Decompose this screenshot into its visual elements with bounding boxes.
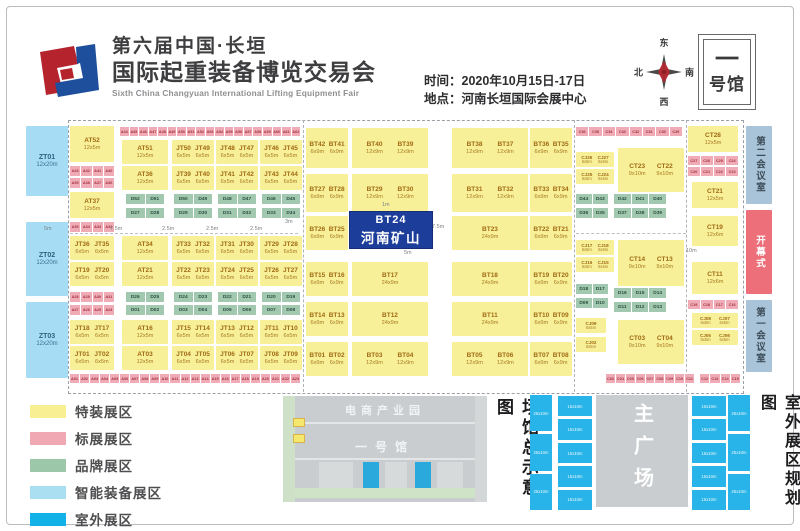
booth-BT38: BT3812x9m — [466, 141, 483, 155]
booth-D40: D40 — [649, 194, 666, 204]
outdoor-plan-caption: 室外展区规划图 — [754, 394, 800, 514]
booth-D04: D04 — [194, 305, 213, 315]
outdoor-plan: 25x10m25x10m25x10m 15x10m15x10m15x10m15x… — [530, 393, 752, 512]
booth-A03: A03 — [90, 374, 99, 383]
booth-D20: D20 — [262, 292, 281, 302]
outdoor-strip-right: 25x10m25x10m25x10m — [728, 395, 750, 510]
booth-box: ZT0312x20m — [26, 302, 68, 378]
booth-C34: C34 — [603, 127, 615, 136]
legend-swatch — [30, 459, 66, 472]
booth-C29: C29 — [670, 127, 682, 136]
booth-box: BT3112x9mBT3212x9m — [452, 174, 528, 212]
booth-JT15: JT156x5m — [176, 325, 191, 339]
booth-box: JT226x5mJT236x5m — [172, 262, 214, 286]
booth-box: JT246x5mJT256x5m — [216, 262, 258, 286]
event-meta: 时间：2020年10月15日-17日 地点：河南长垣国际会展中心 — [424, 72, 587, 108]
booth-C24: C24 — [726, 156, 738, 165]
booth-BT04: BT0412x9m — [397, 352, 414, 366]
booth-box: BT4012x9mBT3912x9m — [352, 128, 428, 168]
booth-CJ09: CJ096x5m — [586, 321, 597, 331]
brand-booth-strip: D07D08 — [262, 305, 300, 315]
booth-box: AT1612x5m — [122, 320, 168, 344]
booth-CT04: CT049x10m — [656, 335, 673, 349]
booth-highlight-BT24: BT24河南矿山 — [350, 212, 432, 248]
legend-label: 室外展区 — [75, 509, 133, 529]
standard-booth-strip: A27A26A25A24 — [70, 305, 114, 315]
compass-north: 北 — [634, 66, 643, 79]
brand-booth-strip: D37D38D39 — [614, 208, 666, 218]
booth-box: CT239x10mCT229x10m — [618, 148, 684, 192]
booth-JT39: JT396x5m — [176, 171, 191, 185]
booth-D07: D07 — [262, 305, 281, 315]
booth-box: AT5112x5m — [122, 140, 168, 164]
booth-A23: A23 — [291, 374, 300, 383]
booth-box: BT1824x9m — [452, 262, 528, 296]
brand-booth-strip: D36D35 — [576, 208, 608, 218]
booth-ZT01: ZT0112x20m — [36, 154, 57, 169]
brand-booth-strip: D46D45 — [262, 194, 300, 204]
dimension-label: 2.5m — [162, 226, 174, 232]
booth-D46: D46 — [262, 194, 281, 204]
booth-D49: D49 — [194, 194, 213, 204]
dimension-label: 3m — [285, 219, 293, 225]
booth-C32: C32 — [630, 127, 642, 136]
booth-C14: C14 — [721, 374, 730, 383]
booth-JT22: JT226x5m — [176, 267, 191, 281]
booth-C12: C12 — [700, 374, 709, 383]
booth-box: JT016x5mJT026x5m — [70, 346, 114, 370]
booth-C27: C27 — [688, 156, 700, 165]
booth-A36: A36 — [104, 178, 114, 188]
booth-D34: D34 — [282, 208, 301, 218]
booth-JT17: JT176x5m — [94, 325, 109, 339]
booth-CJ26: CJ266x5m — [581, 155, 592, 165]
booth-CJ16: CJ166x5m — [581, 260, 592, 270]
booth-JT41: JT416x5m — [220, 171, 235, 185]
brand-booth-strip: D44D43 — [576, 194, 608, 204]
booth-D25: D25 — [146, 292, 165, 302]
booth-C05: C05 — [626, 374, 635, 383]
booth-A02: A02 — [80, 374, 89, 383]
booth-A20: A20 — [261, 374, 270, 383]
booth-A08: A08 — [140, 374, 149, 383]
booth-D50: D50 — [174, 194, 193, 204]
booth-A38: A38 — [81, 178, 91, 188]
standard-booth-strip: A39A38A37A36 — [70, 178, 114, 188]
legend-label: 品牌展区 — [75, 455, 133, 475]
booth-box: JT486x5mJT476x5m — [216, 140, 258, 164]
booth-CT23: CT239x10m — [629, 163, 646, 177]
booth-D17: D17 — [593, 284, 609, 294]
booth-D06: D06 — [238, 305, 257, 315]
booth-C13: C13 — [710, 374, 719, 383]
brand-booth-strip: D18D17 — [576, 284, 608, 294]
booth-BT09: BT096x9m — [553, 312, 569, 326]
booth-BT31: BT3112x9m — [466, 186, 483, 200]
fair-logo — [36, 42, 100, 100]
main-plaza: 主广场 — [596, 395, 688, 507]
booth-box: AT2112x5m — [122, 262, 168, 286]
booth-JT01: JT016x5m — [75, 351, 90, 365]
booth-BT12: BT1224x9m — [382, 312, 399, 326]
booth-D52: D52 — [126, 194, 145, 204]
booth-BT21: BT216x9m — [553, 226, 569, 240]
booth-JT26: JT266x5m — [264, 267, 279, 281]
booth-A10: A10 — [160, 374, 169, 383]
dimension-label: 7.5m — [432, 224, 444, 230]
booth-JT05: JT056x5m — [195, 351, 210, 365]
booth-box: CJ086x5mCJ076x5m — [692, 313, 738, 328]
title-line-1: 第六届中国·长垣 — [112, 36, 376, 59]
booth-box: CT149x10mCT139x10m — [618, 240, 684, 286]
legend-swatch — [30, 405, 66, 418]
booth-ZT02: ZT0212x20m — [36, 252, 57, 267]
booth-AT37: AT3712x5m — [84, 198, 101, 212]
outdoor-booth: 15x10m — [692, 466, 726, 486]
compass-east: 东 — [659, 36, 668, 49]
booth-JT11: JT116x5m — [264, 325, 278, 339]
booth-BT25: BT256x9m — [329, 226, 345, 240]
booth-box: BT1224x9m — [352, 302, 428, 336]
standard-booth-strip: C36C35C34C33C32C31C30C29 — [576, 127, 682, 136]
brand-booth-strip: D26D25 — [126, 292, 164, 302]
booth-BT32: BT3212x9m — [497, 186, 514, 200]
booth-D28: D28 — [146, 208, 165, 218]
outdoor-booth: 25x10m — [530, 434, 552, 470]
booth-D51: D51 — [146, 194, 165, 204]
booth-JT33: JT336x5m — [176, 241, 191, 255]
dimension-label: 2.5m — [206, 226, 218, 232]
booth-AT51: AT5112x5m — [137, 145, 154, 159]
booth-CJ18: CJ186x5m — [598, 243, 609, 253]
booth-box: JT466x5mJT456x5m — [260, 140, 302, 164]
booth-D05: D05 — [218, 305, 237, 315]
booth-C21: C21 — [701, 167, 713, 176]
brand-booth-strip: D22D21 — [218, 292, 256, 302]
booth-D19: D19 — [282, 292, 301, 302]
booth-box: CJ056x5mCJ066x5m — [692, 330, 738, 345]
booth-C31: C31 — [643, 127, 655, 136]
booth-box: BT146x9mBT136x9m — [306, 302, 348, 336]
legend: 特装展区标展展区品牌展区智能装备展区室外展区 — [30, 401, 162, 529]
booth-box: CJ256x5mCJ246x5m — [576, 169, 614, 184]
east-room-第一会议室: 第一会议室 — [746, 300, 772, 372]
booth-A54: A54 — [215, 127, 224, 136]
outdoor-column-right: 15x10m15x10m15x10m15x10m15x10m — [692, 396, 726, 510]
booth-box: JT316x5mJT306x5m — [216, 236, 258, 260]
booth-JT31: JT316x5m — [220, 241, 235, 255]
outdoor-booth: 25x10m — [728, 395, 750, 431]
booth-CT21: CT2112x5m — [707, 188, 724, 202]
booth-D32: D32 — [238, 208, 257, 218]
booth-BT42: BT426x9m — [309, 141, 325, 155]
booth-box: JT046x5mJT056x5m — [172, 346, 214, 370]
site-road-right — [475, 396, 487, 502]
hall-divider-1 — [303, 120, 304, 392]
booth-box: JT366x5mJT356x5m — [70, 236, 114, 260]
booth-C06: C06 — [636, 374, 645, 383]
booth-box: JT396x5mJT406x5m — [172, 166, 214, 190]
booth-D27: D27 — [126, 208, 145, 218]
booth-D29: D29 — [174, 208, 193, 218]
booth-BT03: BT0312x9m — [366, 352, 383, 366]
booth-D08: D08 — [282, 305, 301, 315]
booth-C04: C04 — [616, 374, 625, 383]
ecommerce-park-label: 电商产业园 — [295, 402, 475, 418]
booth-box: AT3412x5m — [122, 236, 168, 260]
booth-A56: A56 — [234, 127, 243, 136]
site-outdoor-block — [363, 462, 379, 488]
booth-BT06: BT0612x9m — [497, 352, 514, 366]
outdoor-booth: 15x10m — [692, 396, 726, 416]
brand-booth-strip: D11D12D13 — [614, 302, 666, 312]
hall-badge-line2: 号馆 — [709, 70, 745, 95]
outdoor-column-left: 15x10m15x10m15x10m15x10m15x10m — [558, 396, 592, 510]
booth-A17: A17 — [231, 374, 240, 383]
booth-CT28: CT2812x5m — [705, 132, 722, 146]
booth-box: JT156x5mJT146x5m — [172, 320, 214, 344]
legend-item: 智能装备展区 — [30, 482, 162, 502]
booth-CJ27: CJ276x5m — [598, 155, 609, 165]
booth-BT27: BT276x9m — [309, 186, 325, 200]
legend-label: 特装展区 — [75, 401, 133, 421]
brand-booth-strip: D16D15D14 — [614, 288, 666, 298]
booth-A19: A19 — [251, 374, 260, 383]
booth-AT34: AT3412x5m — [137, 241, 154, 255]
booth-box: ZT0112x20m — [26, 126, 68, 196]
booth-box: BT0512x9mBT0612x9m — [452, 342, 528, 376]
booth-D12: D12 — [632, 302, 649, 312]
booth-A25: A25 — [93, 305, 103, 315]
booth-JT36: JT366x5m — [75, 241, 90, 255]
booth-BT33: BT336x9m — [533, 186, 549, 200]
booth-A11: A11 — [170, 374, 179, 383]
booth-BT20: BT206x9m — [553, 272, 569, 286]
booth-BT26: BT266x9m — [309, 226, 325, 240]
booth-CT13: CT139x10m — [656, 256, 673, 270]
booth-A16: A16 — [221, 374, 230, 383]
booth-C22: C22 — [714, 167, 726, 176]
booth-box: CT2812x5m — [688, 126, 738, 152]
booth-A59: A59 — [263, 127, 272, 136]
booth-CJ25: CJ256x5m — [581, 172, 592, 182]
booth-A48: A48 — [158, 127, 167, 136]
booth-JT20: JT206x5m — [94, 267, 109, 281]
booth-AT03: AT0312x5m — [137, 351, 154, 365]
hall-number-badge-inner: 一 号馆 — [703, 39, 751, 105]
booth-JT09: JT096x5m — [283, 351, 298, 365]
booth-JT35: JT356x5m — [94, 241, 109, 255]
east-room-开幕式: 开幕式 — [746, 210, 772, 294]
booth-A07: A07 — [130, 374, 139, 383]
booth-box: AT0312x5m — [122, 346, 168, 370]
title-english: Sixth China Changyuan International Lift… — [112, 88, 376, 98]
booth-D21: D21 — [238, 292, 257, 302]
booth-JT46: JT466x5m — [264, 145, 279, 159]
legend-swatch — [30, 432, 66, 445]
booth-box: JT506x5mJT496x5m — [172, 140, 214, 164]
site-block — [319, 462, 353, 488]
booth-A58: A58 — [253, 127, 262, 136]
booth-C11: C11 — [685, 374, 694, 383]
booth-CJ24: CJ246x5m — [598, 172, 609, 182]
booth-JT32: JT326x5m — [195, 241, 210, 255]
booth-D48: D48 — [218, 194, 237, 204]
brand-booth-strip: D42D41D40 — [614, 194, 666, 204]
event-place: 地点：河南长垣国际会展中心 — [424, 90, 587, 108]
booth-box: BT2912x9mBT3012x9m — [352, 174, 428, 212]
standard-booth-strip: C03C04C05C06C07C08C09C10C11 — [606, 374, 694, 383]
booth-A14: A14 — [201, 374, 210, 383]
booth-JT04: JT046x5m — [176, 351, 191, 365]
aisle-line-east — [576, 233, 686, 234]
booth-box: JT266x5mJT276x5m — [260, 262, 302, 286]
booth-box: BT076x9mBT086x9m — [530, 342, 572, 376]
booth-A01: A01 — [70, 374, 79, 383]
brand-booth-strip: D52D51 — [126, 194, 164, 204]
booth-CJ17: CJ176x5m — [581, 243, 592, 253]
booth-A12: A12 — [181, 374, 190, 383]
booth-C33: C33 — [616, 127, 628, 136]
booth-A46: A46 — [139, 127, 148, 136]
booth-box: BT3812x9mBT3712x9m — [452, 128, 528, 168]
booth-BT08: BT086x9m — [553, 352, 569, 366]
outdoor-booth: 25x10m — [728, 474, 750, 510]
outdoor-booth: 15x10m — [558, 419, 592, 439]
brand-booth-strip: D27D28 — [126, 208, 164, 218]
booth-A43: A43 — [70, 166, 80, 176]
main-plaza-label: 主广场 — [628, 403, 657, 499]
booth-box: ZT0212x20m — [26, 222, 68, 296]
booth-box: CJ176x5mCJ186x5m — [576, 240, 614, 255]
booth-A39: A39 — [70, 178, 80, 188]
brand-booth-strip: D50D49 — [174, 194, 212, 204]
compass-rose: 东 北 南 西 — [634, 36, 694, 108]
booth-A09: A09 — [150, 374, 159, 383]
booth-A50: A50 — [177, 127, 186, 136]
booth-JT13: JT136x5m — [220, 325, 235, 339]
booth-C25: C25 — [714, 156, 726, 165]
booth-A52: A52 — [196, 127, 205, 136]
booth-A47: A47 — [149, 127, 158, 136]
brand-booth-strip: D01D02 — [126, 305, 164, 315]
outdoor-booth: 15x10m — [692, 419, 726, 439]
booth-A60: A60 — [273, 127, 282, 136]
booth-box: BT156x9mBT166x9m — [306, 262, 348, 296]
booth-D31: D31 — [218, 208, 237, 218]
booth-A57: A57 — [244, 127, 253, 136]
booth-C07: C07 — [646, 374, 655, 383]
booth-C16: C16 — [726, 300, 738, 309]
booth-AT36: AT3612x5m — [137, 171, 154, 185]
booth-JT25: JT256x5m — [239, 267, 254, 281]
booth-JT02: JT026x5m — [94, 351, 109, 365]
event-time: 时间：2020年10月15日-17日 — [424, 72, 587, 90]
brand-booth-strip: D31D32 — [218, 208, 256, 218]
booth-A15: A15 — [211, 374, 220, 383]
booth-box: CJ266x5mCJ276x5m — [576, 152, 614, 167]
booth-box: CJ166x5mCJ156x5m — [576, 257, 614, 272]
booth-A55: A55 — [225, 127, 234, 136]
booth-A49: A49 — [168, 127, 177, 136]
booth-BT11: BT1124x9m — [482, 312, 499, 326]
booth-D33: D33 — [262, 208, 281, 218]
booth-JT45: JT456x5m — [283, 145, 298, 159]
booth-box: JT436x5mJT446x5m — [260, 166, 302, 190]
booth-box: JT336x5mJT326x5m — [172, 236, 214, 260]
standard-booth-strip: C27C26C25C24 — [688, 156, 738, 165]
booth-A26: A26 — [81, 305, 91, 315]
east-rooms: 第二会议室开幕式第一会议室 — [746, 126, 772, 372]
booth-CT03: CT039x10m — [629, 335, 646, 349]
booth-ZT03: ZT0312x20m — [36, 333, 57, 348]
outdoor-booth: 15x10m — [558, 443, 592, 463]
booth-box: JT136x5mJT126x5m — [216, 320, 258, 344]
dimension-label: 1m — [382, 202, 390, 208]
aisle-line-west — [70, 233, 298, 234]
booth-JT23: JT236x5m — [195, 267, 210, 281]
booth-C36: C36 — [576, 127, 588, 136]
booth-JT28: JT286x5m — [283, 241, 298, 255]
booth-JT07: JT076x5m — [239, 351, 254, 365]
booth-A62: A62 — [292, 127, 301, 136]
booth-D09: D09 — [576, 298, 592, 308]
booth-A33: A33 — [93, 222, 103, 232]
exhibition-floorplan-poster: 第六届中国·长垣 国际起重装备博览交易会 Sixth China Changyu… — [0, 0, 800, 531]
booth-A04: A04 — [100, 374, 109, 383]
dimension-label: 10m — [686, 248, 697, 254]
dimension-label: 2.5m — [250, 226, 262, 232]
outdoor-booth: 25x10m — [530, 395, 552, 431]
booth-A21: A21 — [271, 374, 280, 383]
booth-JT49: JT496x5m — [195, 145, 210, 159]
booth-D24: D24 — [174, 292, 193, 302]
booth-box: BT2324x9m — [452, 216, 528, 250]
hall-number-badge: 一 号馆 — [698, 34, 756, 110]
brand-booth-strip: D03D04 — [174, 305, 212, 315]
booth-C08: C08 — [655, 374, 664, 383]
standard-booth-strip: A43A42A41A40 — [70, 166, 114, 176]
booth-CJ15: CJ156x5m — [598, 260, 609, 270]
booth-D42: D42 — [614, 194, 631, 204]
booth-C09: C09 — [665, 374, 674, 383]
booth-C26: C26 — [701, 156, 713, 165]
east-room-第二会议室: 第二会议室 — [746, 126, 772, 204]
booth-BT17: BT1724x9m — [382, 272, 399, 286]
booth-D44: D44 — [576, 194, 592, 204]
booth-C20: C20 — [688, 167, 700, 176]
legend-item: 品牌展区 — [30, 455, 162, 475]
site-outdoor-block — [415, 462, 431, 488]
legend-item: 室外展区 — [30, 509, 162, 529]
brand-booth-strip: D48D47 — [218, 194, 256, 204]
site-road-left — [283, 396, 295, 502]
booth-JT12: JT126x5m — [239, 325, 254, 339]
booth-CJ08: CJ086x5m — [700, 316, 711, 326]
booth-BT19: BT196x9m — [533, 272, 549, 286]
hall-divider-2 — [574, 120, 575, 392]
booth-BT15: BT156x9m — [309, 272, 325, 286]
site-road-line — [295, 422, 475, 424]
booth-box: BT196x9mBT206x9m — [530, 262, 572, 296]
booth-box: CJ026x5m — [576, 337, 606, 352]
legend-label: 标展展区 — [75, 428, 133, 448]
booth-D10: D10 — [593, 298, 609, 308]
booth-BT01: BT016x9m — [309, 352, 325, 366]
booth-JT06: JT066x5m — [220, 351, 235, 365]
booth-A53: A53 — [206, 127, 215, 136]
booth-BT35: BT356x9m — [553, 141, 569, 155]
